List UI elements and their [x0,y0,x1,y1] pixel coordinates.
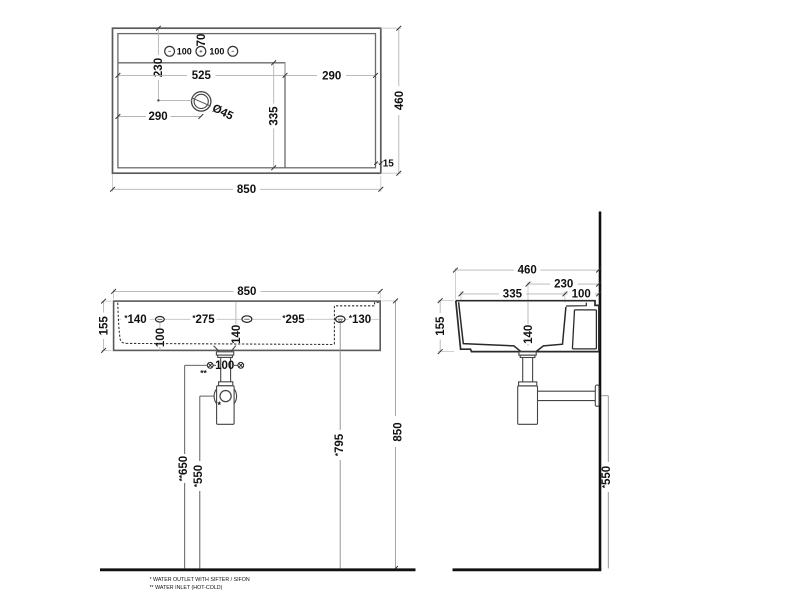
svg-text:155: 155 [99,316,111,336]
svg-text:70: 70 [196,34,208,47]
svg-text:140: 140 [523,325,535,344]
svg-text:460: 460 [394,91,406,110]
svg-text:15: 15 [383,158,395,169]
svg-text:460: 460 [518,265,537,277]
svg-text:*: * [218,400,222,410]
svg-text:850: 850 [393,422,405,441]
svg-text:100: 100 [215,360,234,372]
svg-text:* WATER OUTLET WITH SIFTER /: * WATER OUTLET WITH SIFTER / SIFON [150,577,250,583]
svg-text:** WATER INLET (HOT-COLD): ** WATER INLET (HOT-COLD) [150,585,223,591]
svg-text:100: 100 [155,328,167,347]
svg-text:*130: *130 [349,314,371,326]
svg-text:850: 850 [237,184,256,196]
svg-text:155: 155 [435,316,447,336]
svg-text:100: 100 [572,289,591,301]
svg-text:100: 100 [209,47,224,57]
svg-text:140: 140 [231,325,243,344]
svg-text:230: 230 [153,58,165,77]
svg-text:335: 335 [269,106,281,126]
svg-text:525: 525 [192,70,212,82]
svg-text:335: 335 [503,289,523,301]
svg-text:*140: *140 [124,314,146,326]
svg-text:850: 850 [237,286,256,298]
svg-text:*275: *275 [192,314,215,326]
svg-text:230: 230 [554,279,573,291]
svg-text:100: 100 [177,47,192,57]
svg-text:290: 290 [322,70,341,82]
svg-text:290: 290 [149,111,168,123]
svg-text:*550: *550 [601,466,613,488]
svg-text:*795: *795 [334,433,346,456]
svg-text:**: ** [200,368,207,378]
svg-text:*550: *550 [193,465,205,487]
svg-text:*295: *295 [282,314,305,326]
